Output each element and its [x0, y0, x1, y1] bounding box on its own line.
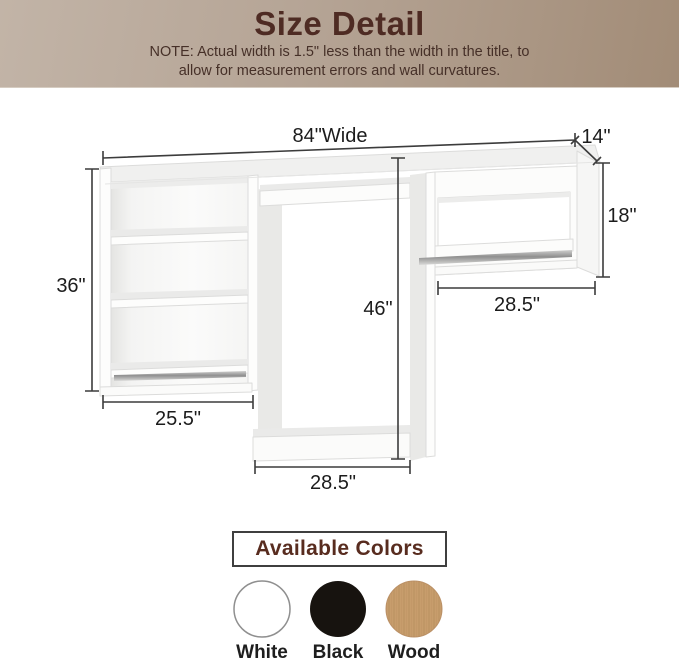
color-swatch-circles [233, 580, 443, 638]
dim-line-left-width [103, 395, 253, 409]
left-tower-side-panel [100, 168, 111, 394]
label-depth: 14" [581, 126, 610, 148]
label-middle-width: 28.5" [310, 472, 356, 494]
label-right-width: 28.5" [494, 294, 540, 316]
swatch-wood-grain [386, 581, 442, 637]
middle-right-panel-face [410, 173, 426, 461]
label-right-height: 18" [607, 205, 636, 227]
left-tower-right-panel [248, 175, 258, 391]
swatch-white [234, 581, 290, 637]
label-middle-height: 46" [363, 298, 392, 320]
label-overall-width: 84"Wide [293, 125, 368, 147]
color-swatches: White Black Wood [233, 580, 443, 660]
middle-bottom-board-front [253, 433, 410, 461]
label-left-height: 36" [56, 275, 85, 297]
right-outer-side-panel [577, 151, 599, 276]
middle-left-panel-face [258, 189, 282, 434]
swatch-black [310, 581, 366, 637]
middle-right-panel-front [426, 172, 435, 457]
available-colors-box: Available Colors [232, 531, 447, 567]
label-left-width: 25.5" [155, 408, 201, 430]
dim-line-left-height [85, 169, 99, 391]
dim-line-middle-height [391, 158, 405, 459]
dim-line-right-width [438, 281, 595, 295]
available-colors-title: Available Colors [255, 537, 424, 561]
